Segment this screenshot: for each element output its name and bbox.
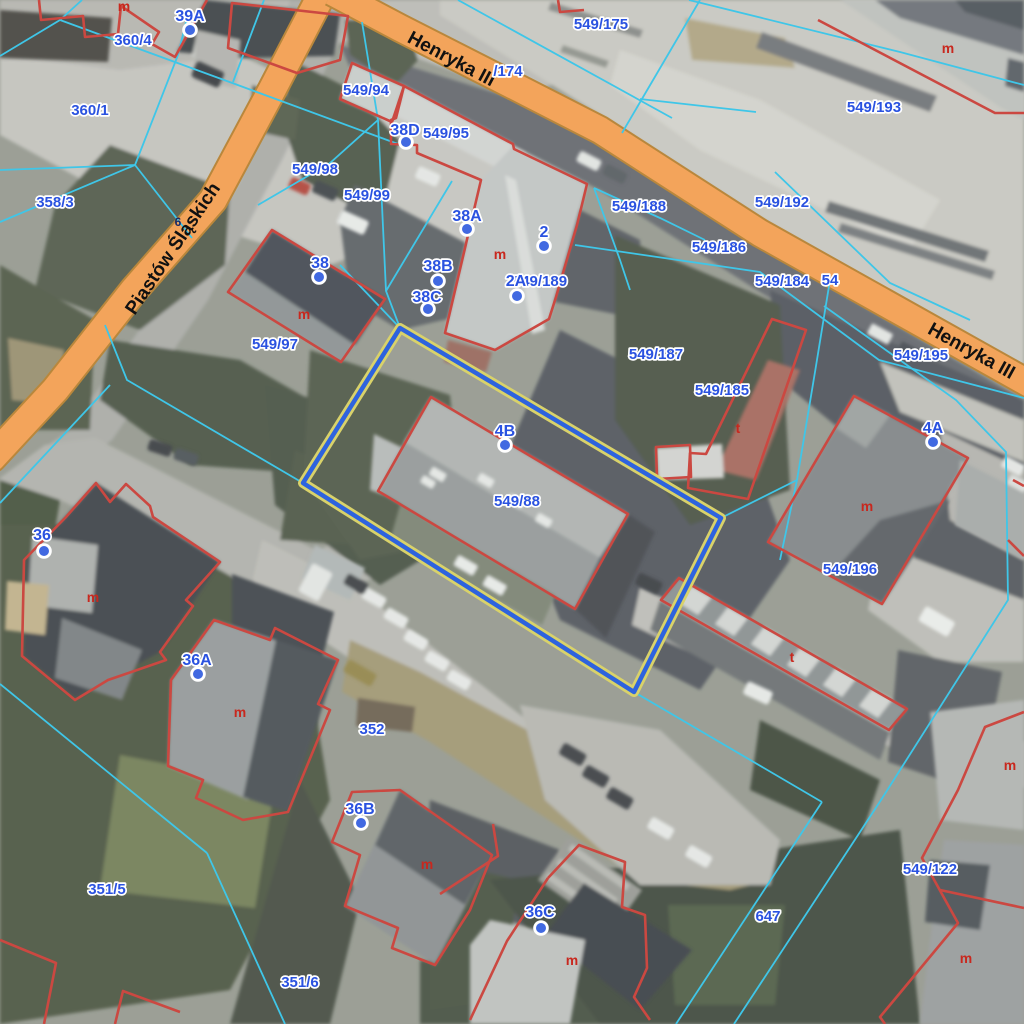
svg-text:36B: 36B — [345, 801, 374, 818]
svg-text:549/99: 549/99 — [344, 187, 390, 204]
svg-text:38B: 38B — [423, 258, 452, 275]
svg-text:549/88: 549/88 — [494, 493, 540, 510]
svg-text:/174: /174 — [493, 63, 523, 80]
svg-text:36A: 36A — [182, 652, 212, 669]
svg-text:m: m — [87, 589, 99, 605]
svg-text:36: 36 — [33, 527, 51, 544]
svg-text:549/196: 549/196 — [823, 561, 877, 578]
svg-text:38: 38 — [311, 255, 329, 272]
svg-text:549/97: 549/97 — [252, 336, 298, 353]
svg-text:358/3: 358/3 — [36, 194, 74, 211]
svg-text:2: 2 — [540, 224, 549, 241]
svg-text:m: m — [566, 952, 578, 968]
svg-text:m: m — [960, 950, 972, 966]
svg-text:t: t — [736, 420, 741, 436]
svg-text:549/95: 549/95 — [423, 125, 469, 142]
svg-text:38D: 38D — [390, 122, 419, 139]
svg-text:4A: 4A — [923, 420, 944, 437]
svg-text:549/175: 549/175 — [574, 16, 628, 33]
svg-text:549/187: 549/187 — [629, 346, 683, 363]
svg-text:549/192: 549/192 — [755, 194, 809, 211]
svg-text:549/122: 549/122 — [903, 861, 957, 878]
svg-text:2A: 2A — [506, 273, 527, 290]
svg-text:m: m — [1004, 757, 1016, 773]
svg-text:6: 6 — [175, 215, 182, 229]
svg-text:351/5: 351/5 — [88, 881, 126, 898]
svg-text:352: 352 — [359, 721, 384, 738]
svg-text:360/1: 360/1 — [71, 102, 109, 119]
svg-text:36C: 36C — [525, 904, 555, 921]
svg-text:39A: 39A — [175, 8, 205, 25]
svg-text:m: m — [421, 856, 433, 872]
svg-text:549/98: 549/98 — [292, 161, 338, 178]
svg-text:549/186: 549/186 — [692, 239, 746, 256]
svg-text:54: 54 — [822, 272, 839, 289]
svg-text:m: m — [118, 0, 130, 14]
svg-text:549/188: 549/188 — [612, 198, 666, 215]
svg-text:m: m — [234, 704, 246, 720]
svg-text:t: t — [790, 649, 795, 665]
svg-text:38C: 38C — [412, 289, 442, 306]
svg-text:549/184: 549/184 — [755, 273, 810, 290]
svg-text:549/195: 549/195 — [894, 347, 948, 364]
svg-text:351/6: 351/6 — [281, 974, 319, 991]
svg-text:549/94: 549/94 — [343, 82, 390, 99]
svg-text:38A: 38A — [452, 208, 482, 225]
svg-text:549/193: 549/193 — [847, 99, 901, 116]
svg-text:m: m — [861, 498, 873, 514]
svg-text:m: m — [298, 306, 310, 322]
svg-text:m: m — [494, 246, 506, 262]
svg-text:4B: 4B — [495, 423, 515, 440]
svg-text:360/4: 360/4 — [114, 32, 152, 49]
svg-text:647: 647 — [755, 908, 780, 925]
svg-text:549/185: 549/185 — [695, 382, 749, 399]
svg-text:m: m — [942, 40, 954, 56]
